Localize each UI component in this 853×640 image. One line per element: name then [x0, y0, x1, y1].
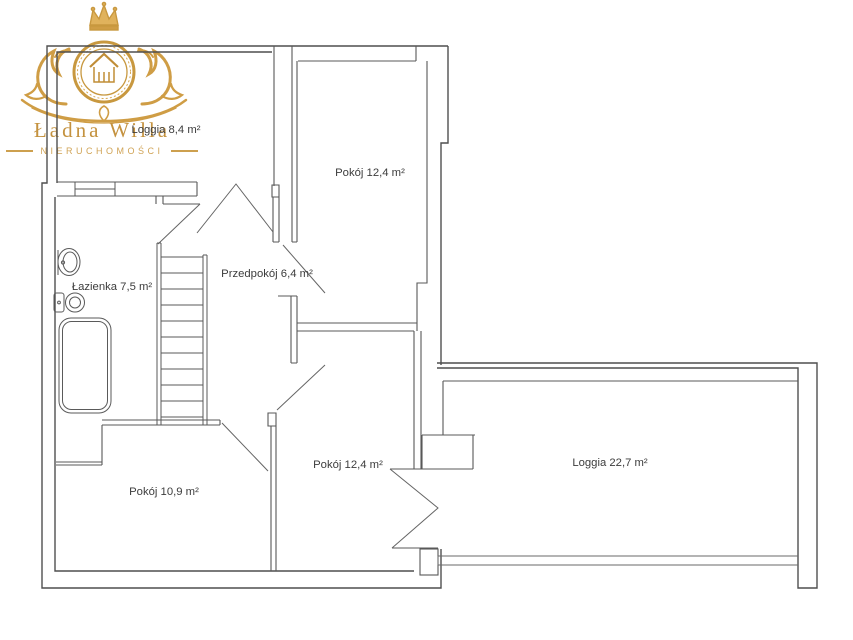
double-door-swing: [197, 184, 273, 233]
stairs: [157, 243, 207, 425]
room-label-pokoj-bottom: Pokój 12,4 m²: [313, 459, 383, 471]
sink-icon: [58, 249, 80, 276]
bottom-room-door-swing: [277, 365, 325, 410]
floor-plan-svg: Loggia 8,4 m² Pokój 12,4 m² Przedpokój 6…: [0, 0, 853, 640]
floor-plan-page: Ładna Willa NIERUCHOMOŚCI: [0, 0, 853, 640]
room-label-loggia-large: Loggia 22,7 m²: [572, 457, 648, 469]
room-label-pokoj-left: Pokój 10,9 m²: [129, 486, 199, 498]
room-labels: Loggia 8,4 m² Pokój 12,4 m² Przedpokój 6…: [72, 124, 648, 498]
bathroom-door-swing: [158, 204, 200, 244]
balcony-railing: [438, 556, 798, 565]
bathtub-icon: [59, 318, 111, 413]
french-door-swing: [390, 469, 438, 548]
toilet-icon: [54, 293, 85, 312]
bathroom-fixtures: [54, 249, 111, 414]
room-label-loggia-small: Loggia 8,4 m²: [131, 124, 200, 136]
room-label-przedpokoj: Przedpokój 6,4 m²: [221, 268, 313, 280]
window-symbols: [75, 182, 115, 196]
door-swings: [158, 184, 438, 548]
room-label-pokoj-top: Pokój 12,4 m²: [335, 167, 405, 179]
left-room-door-swing: [222, 423, 268, 471]
room-label-lazienka: Łazienka 7,5 m²: [72, 281, 153, 293]
